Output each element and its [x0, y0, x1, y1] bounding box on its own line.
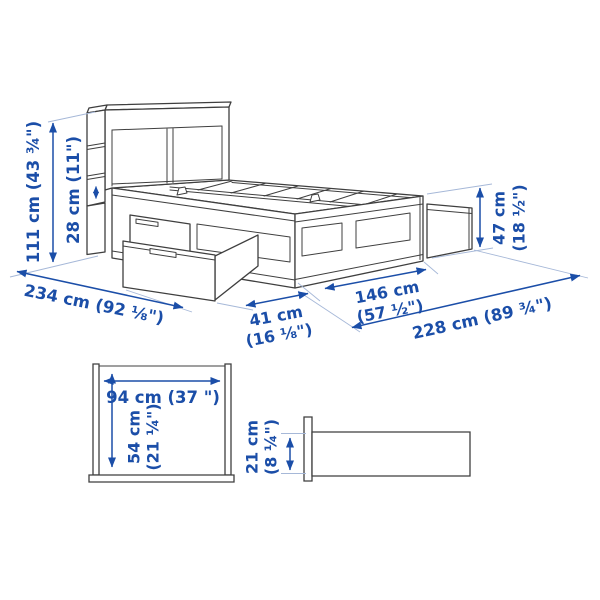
far-drawer-unit: [427, 204, 472, 258]
label-opening-height-cm: 54 cm: [125, 410, 144, 464]
label-footboard-height-in: (18 ½"): [510, 184, 529, 251]
label-headboard-storage: 28 cm (11"): [64, 136, 83, 244]
label-opening-width: 94 cm (37 "): [106, 388, 220, 407]
label-under-bed-clearance-in: (8 ¼"): [262, 419, 281, 475]
label-total-height: 111 cm (43 ¾"): [24, 121, 43, 263]
label-opening-height-in: (21 ¼"): [144, 403, 163, 470]
label-footboard-height-cm: 47 cm: [490, 191, 509, 245]
side-view-post: [304, 417, 312, 481]
label-frame-length: 228 cm (89 ¾"): [411, 294, 554, 343]
label-under-bed-clearance-cm: 21 cm: [243, 420, 262, 474]
headboard-storage-shelves: [87, 105, 107, 255]
side-view-rail: [312, 432, 470, 476]
front-view-right-post: [225, 364, 231, 475]
diagram-canvas: 111 cm (43 ¾") 28 cm (11") 234 cm (92 ⅛"…: [0, 0, 600, 600]
slat-bracket: [310, 194, 320, 202]
side-view-clearance: [304, 417, 470, 481]
front-view-left-post: [93, 364, 99, 475]
headboard-leg: [87, 203, 105, 255]
product-dimension-diagram: 111 cm (43 ¾") 28 cm (11") 234 cm (92 ⅛"…: [0, 0, 600, 600]
front-view-base-rail: [89, 475, 234, 482]
slat-bracket: [177, 187, 187, 195]
